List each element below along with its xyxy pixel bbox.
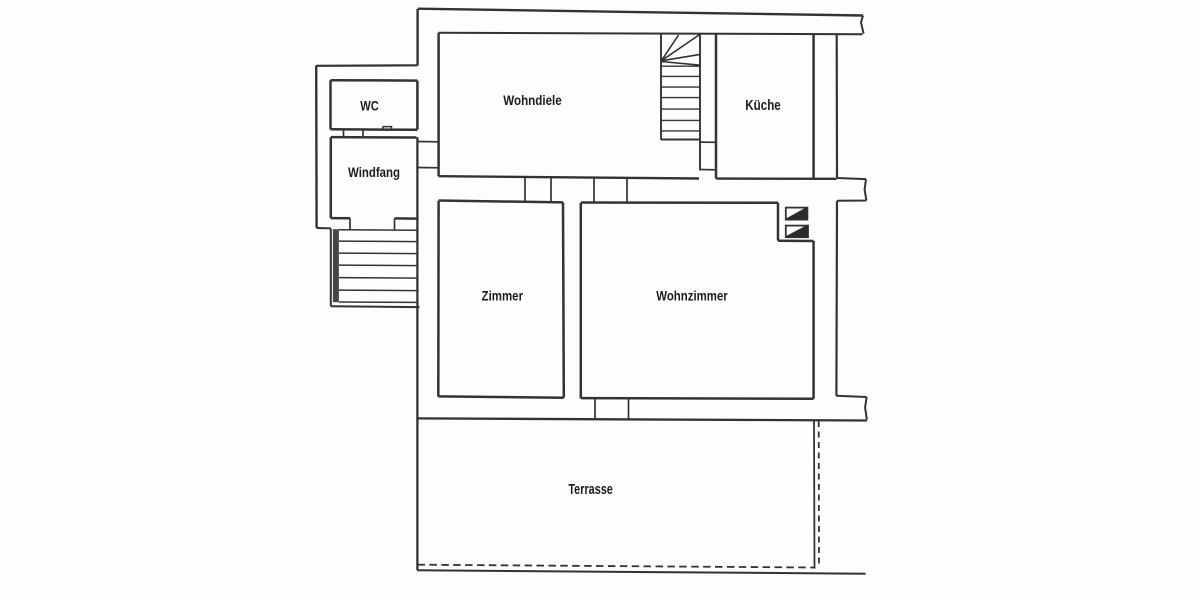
svg-text:Windfang: Windfang — [348, 164, 400, 180]
svg-text:Wohnzimmer: Wohnzimmer — [656, 287, 728, 303]
svg-text:Wohndiele: Wohndiele — [503, 92, 562, 108]
svg-text:Zimmer: Zimmer — [482, 288, 524, 304]
svg-text:WC: WC — [360, 98, 379, 114]
svg-text:Küche: Küche — [745, 97, 781, 114]
svg-text:Terrasse: Terrasse — [568, 482, 613, 498]
